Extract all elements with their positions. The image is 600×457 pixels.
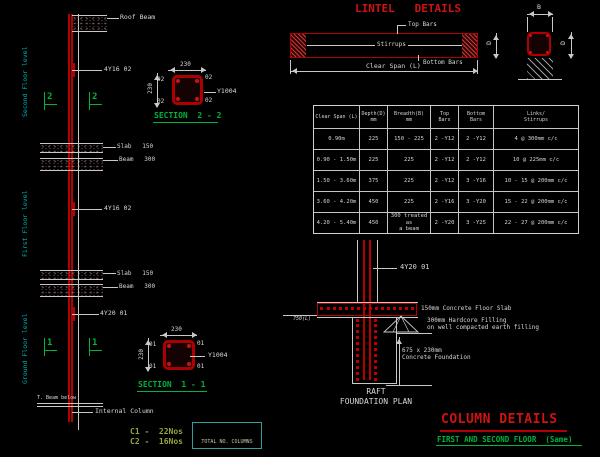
section-marker-line bbox=[89, 104, 102, 105]
corner-bar-label: 02 bbox=[205, 74, 212, 81]
lintel-schedule-table: Clear Span (L) Depth(D) mm Breadth(B) mm… bbox=[313, 105, 579, 234]
section-marker-line bbox=[89, 350, 102, 351]
totals-box: TOTAL NO. COLUMNS C1 : 22Nos C2 : 16 Nos bbox=[192, 422, 262, 449]
arrow-icon bbox=[493, 32, 499, 40]
slab-label: Slab 150 bbox=[117, 270, 153, 277]
totals-title: TOTAL NO. COLUMNS bbox=[193, 439, 261, 446]
section-marker: 2 bbox=[92, 92, 97, 103]
lintel-title: LINTEL DETAILS bbox=[355, 2, 461, 15]
table-cell: 2 -Y12 bbox=[431, 150, 458, 170]
column-details-subtitle: FIRST AND SECOND FLOOR (Same) bbox=[437, 435, 572, 444]
section-marker: 1 bbox=[47, 338, 52, 349]
dim-line bbox=[399, 337, 400, 385]
slab-rebar-dots bbox=[320, 307, 414, 310]
leader-line bbox=[204, 92, 216, 93]
corner-bar-label: 02 bbox=[157, 98, 164, 105]
beam-label: Beam 300 bbox=[119, 283, 155, 290]
top-bars-label: Top Bars bbox=[408, 21, 437, 28]
lintel-end-hatch bbox=[462, 34, 477, 57]
dim-label: 230 bbox=[171, 326, 182, 333]
clear-span-label: Clear Span (L) bbox=[364, 63, 423, 71]
leader-line bbox=[397, 25, 398, 34]
leader-line bbox=[103, 160, 118, 161]
hardcore-note: 300mm Hardcore Filling on well compacted… bbox=[427, 317, 539, 331]
table-cell: 0.90m bbox=[314, 129, 359, 149]
leader-line bbox=[103, 273, 116, 274]
subtitle-underline bbox=[436, 445, 582, 446]
dim-line bbox=[386, 385, 432, 386]
column-count-note: C1 - 22Nos bbox=[130, 427, 183, 437]
rebar-dot bbox=[167, 344, 171, 348]
rebar-label: 4Y16 02 bbox=[104, 66, 131, 74]
wall-hatch bbox=[527, 58, 553, 79]
column-face-line bbox=[357, 240, 358, 304]
rebar-dot bbox=[529, 34, 532, 37]
arrow-icon bbox=[192, 332, 200, 338]
dim-d-label: D bbox=[486, 41, 494, 45]
arrow-icon bbox=[159, 332, 167, 338]
leader-line bbox=[418, 55, 419, 61]
main-bar-label: Y1004 bbox=[217, 88, 237, 96]
tie-beam-line bbox=[37, 403, 103, 404]
arrow-icon bbox=[167, 67, 175, 73]
arrow-icon bbox=[568, 54, 574, 62]
internal-column-label: Internal Column bbox=[95, 408, 154, 416]
table-cell: 10 - 15 @ 200mm c/c bbox=[494, 171, 578, 191]
arrow-icon bbox=[289, 68, 297, 74]
slab-hatch bbox=[40, 271, 103, 279]
leader-line bbox=[72, 209, 102, 210]
lintel-section-square bbox=[527, 32, 551, 56]
slab-line bbox=[40, 152, 103, 153]
rebar-dot bbox=[546, 34, 549, 37]
rebar-label: 4Y20 01 bbox=[100, 310, 127, 318]
dim-line bbox=[290, 71, 478, 72]
section-title-underline bbox=[137, 391, 207, 392]
dim-label: 230 bbox=[180, 61, 191, 68]
arrow-icon bbox=[473, 68, 481, 74]
table-cell: 300 treated as a beam bbox=[388, 213, 430, 233]
section-marker-line bbox=[44, 104, 57, 105]
table-cell: 2 -Y20 bbox=[431, 213, 458, 233]
leader-line bbox=[72, 314, 99, 315]
section-marker-line bbox=[89, 338, 90, 356]
corner-bar-label: 02 bbox=[157, 76, 164, 83]
lintel-end-hatch bbox=[291, 34, 306, 57]
roof-beam-hatch bbox=[72, 16, 107, 31]
table-cell: 225 bbox=[388, 150, 430, 170]
rebar-dot bbox=[187, 344, 191, 348]
rebar-label: 4Y16 02 bbox=[104, 205, 131, 213]
stem-rebar-dots bbox=[356, 319, 359, 381]
table-cell: 2 -Y12 bbox=[431, 171, 458, 191]
table-cell: 2 -Y12 bbox=[459, 129, 493, 149]
floor-level-label: First Floor level bbox=[22, 185, 30, 257]
leader-line bbox=[103, 287, 118, 288]
arrow-icon bbox=[568, 31, 574, 39]
table-cell: 2 -Y16 bbox=[431, 192, 458, 212]
leader-line bbox=[72, 412, 93, 413]
table-cell: 225 bbox=[360, 150, 387, 170]
arrow-icon bbox=[201, 67, 209, 73]
table-cell: 225 bbox=[388, 171, 430, 191]
dim-ext-line bbox=[527, 17, 528, 32]
table-header-cell: Clear Span (L) bbox=[314, 106, 359, 128]
column-line bbox=[68, 14, 70, 422]
table-cell: 1.50 - 3.60m bbox=[314, 171, 359, 191]
stirrups-label: Stirrups bbox=[375, 41, 408, 48]
corner-bar-label: 01 bbox=[149, 341, 156, 348]
arrow-icon bbox=[493, 54, 499, 62]
roof-beam-label: Roof Beam bbox=[120, 14, 155, 22]
table-header-cell: Top Bars bbox=[431, 106, 458, 128]
section-title-underline bbox=[153, 122, 218, 123]
table-cell: 22 - 27 @ 200mm c/c bbox=[494, 213, 578, 233]
table-cell: 4 @ 300mm c/c bbox=[494, 129, 578, 149]
table-header-cell: Depth(D) mm bbox=[360, 106, 387, 128]
section-marker-line bbox=[44, 92, 45, 110]
table-cell: 15 - 22 @ 200mm c/c bbox=[494, 192, 578, 212]
raft-caption: RAFT FOUNDATION PLAN bbox=[333, 387, 419, 406]
floor-level-label: Ground Floor level bbox=[22, 312, 30, 384]
main-bar-label: Y1004 bbox=[208, 352, 228, 360]
cad-drawing-canvas: Roof Beam Second Floor level First Floor… bbox=[0, 0, 600, 457]
rebar-dot bbox=[546, 51, 549, 54]
section-marker-line bbox=[44, 350, 57, 351]
beam-line bbox=[40, 170, 103, 171]
beam-label: Beam 300 bbox=[119, 156, 155, 163]
hardcore-line bbox=[396, 333, 432, 334]
table-cell: 375 bbox=[360, 171, 387, 191]
table-cell: 3 -Y25 bbox=[459, 213, 493, 233]
column-face-line bbox=[377, 240, 378, 304]
bottom-bars-label: Bottom Bars bbox=[423, 59, 463, 66]
column-section-square bbox=[163, 340, 195, 370]
stem-bottom-line bbox=[352, 383, 397, 384]
foundation-note: 675 x 230mm Concrete Foundation bbox=[402, 347, 471, 361]
dim-label: 230 bbox=[138, 349, 145, 360]
corner-bar-label: 01 bbox=[149, 363, 156, 370]
table-cell: 2 -Y12 bbox=[459, 150, 493, 170]
slab-label: Slab 150 bbox=[117, 143, 153, 150]
corner-bar-label: 01 bbox=[197, 363, 204, 370]
rebar-dot bbox=[529, 51, 532, 54]
tie-beam-line bbox=[37, 406, 103, 407]
roof-beam-line bbox=[72, 31, 107, 32]
table-cell: 450 bbox=[360, 192, 387, 212]
table-cell: 4.20 - 5.40m bbox=[314, 213, 359, 233]
table-header-cell: Breadth(B) mm bbox=[388, 106, 430, 128]
column-section-square bbox=[172, 75, 203, 105]
beam-hatch bbox=[40, 159, 103, 170]
rebar-label: 4Y20 01 bbox=[400, 263, 430, 271]
table-cell: 225 bbox=[360, 129, 387, 149]
table-cell: 225 bbox=[388, 192, 430, 212]
rebar-dot bbox=[176, 97, 180, 101]
dim-d-label: D bbox=[560, 41, 568, 45]
arrow-icon bbox=[396, 336, 402, 344]
table-cell: 3 -Y16 bbox=[459, 171, 493, 191]
title-underline bbox=[440, 430, 567, 432]
slab-note: 150mm Concrete Floor Slab bbox=[421, 305, 511, 312]
slab-line bbox=[40, 279, 103, 280]
dim-b-label: B bbox=[537, 4, 541, 12]
section-title: SECTION 1 - 1 bbox=[138, 380, 205, 390]
section-marker: 2 bbox=[47, 92, 52, 103]
floor-level-label: Second Floor level bbox=[22, 45, 30, 117]
section-title: SECTION 2 - 2 bbox=[154, 111, 221, 121]
corner-bar-label: 01 bbox=[197, 340, 204, 347]
ground-label: 750(L) bbox=[293, 316, 311, 322]
rebar-dot bbox=[187, 362, 191, 366]
leader-line bbox=[107, 18, 119, 19]
table-cell: 0.90 - 1.50m bbox=[314, 150, 359, 170]
beam-hatch bbox=[40, 285, 103, 296]
dim-ext-line bbox=[552, 17, 553, 32]
leader-line bbox=[397, 25, 406, 26]
table-cell: 450 bbox=[360, 213, 387, 233]
table-cell: 150 - 225 bbox=[388, 129, 430, 149]
rebar-dot bbox=[195, 97, 199, 101]
leader-line bbox=[373, 268, 397, 269]
corner-bar-label: 02 bbox=[205, 97, 212, 104]
beam-line bbox=[40, 296, 103, 297]
dim-label: 230 bbox=[147, 83, 154, 94]
leader-line bbox=[103, 147, 116, 148]
column-face-line bbox=[78, 14, 79, 430]
slab-hatch bbox=[40, 144, 103, 152]
stem-face-line bbox=[352, 317, 353, 383]
table-cell: 2 -Y12 bbox=[431, 129, 458, 149]
table-header-cell: Links/ Stirrups bbox=[494, 106, 578, 128]
ground-line bbox=[518, 79, 562, 80]
column-details-title: COLUMN DETAILS bbox=[441, 412, 558, 428]
table-cell: 3 -Y20 bbox=[459, 192, 493, 212]
rebar-dot bbox=[167, 362, 171, 366]
leader-line bbox=[72, 70, 102, 71]
compaction-triangle-icon bbox=[383, 315, 420, 334]
section-marker-line bbox=[89, 92, 90, 110]
leader-line bbox=[190, 356, 205, 357]
column-count-note: C2 - 16Nos bbox=[130, 437, 183, 447]
rebar-dot bbox=[176, 79, 180, 83]
table-cell: 10 @ 225mm c/c bbox=[494, 150, 578, 170]
section-marker-line bbox=[44, 338, 45, 356]
table-header-cell: Bottom Bars bbox=[459, 106, 493, 128]
table-cell: 3.60 - 4.20m bbox=[314, 192, 359, 212]
tie-beam-label: T. Beam below bbox=[37, 395, 76, 401]
rebar-dot bbox=[195, 79, 199, 83]
section-marker: 1 bbox=[92, 338, 97, 349]
stem-rebar-dots bbox=[374, 319, 377, 381]
